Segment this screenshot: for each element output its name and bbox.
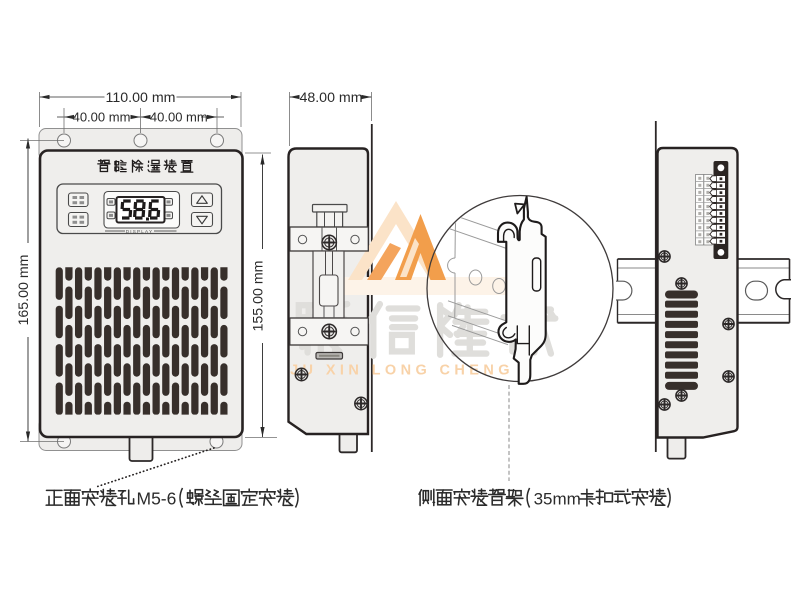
svg-text:155.00 mm: 155.00 mm xyxy=(251,261,267,332)
svg-text:DISPLAY: DISPLAY xyxy=(126,229,153,234)
svg-text:JU XIN LONG CHENG: JU XIN LONG CHENG xyxy=(290,363,514,379)
svg-text:48.00 mm: 48.00 mm xyxy=(299,90,362,106)
svg-text:110.00 mm: 110.00 mm xyxy=(106,90,176,106)
svg-text:M5-6: M5-6 xyxy=(137,489,177,509)
svg-text:40.00 mm: 40.00 mm xyxy=(73,110,131,125)
svg-text:165.00 mm: 165.00 mm xyxy=(16,255,32,326)
svg-text:35mm: 35mm xyxy=(534,490,581,509)
svg-text:40.00 mm: 40.00 mm xyxy=(150,110,208,125)
